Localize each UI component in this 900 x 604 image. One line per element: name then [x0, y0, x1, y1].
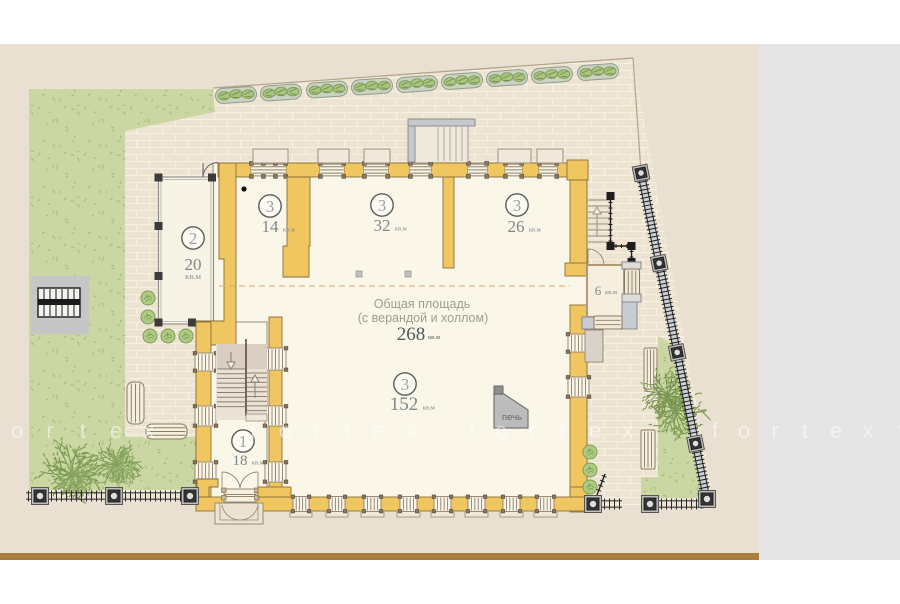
svg-text:3: 3	[378, 196, 387, 215]
svg-text:20: 20	[185, 255, 202, 274]
svg-text:14: 14	[262, 217, 280, 236]
svg-text:кв.м: кв.м	[423, 405, 435, 412]
svg-text:Общая площадь: Общая площадь	[374, 297, 471, 311]
svg-text:6: 6	[595, 283, 602, 298]
svg-text:2: 2	[189, 229, 198, 248]
svg-text:32: 32	[374, 216, 391, 235]
svg-text:x: x	[623, 418, 634, 443]
svg-text:f: f	[250, 418, 257, 443]
svg-text:r: r	[46, 418, 53, 443]
svg-text:кв.м: кв.м	[395, 226, 407, 233]
svg-text:e: e	[830, 418, 842, 443]
svg-text:КВ.М: КВ.М	[185, 274, 201, 281]
svg-text:r: r	[312, 418, 319, 443]
svg-text:1: 1	[239, 432, 248, 451]
svg-text:o: o	[738, 418, 750, 443]
svg-text:t: t	[802, 418, 808, 443]
svg-text:18: 18	[233, 453, 248, 469]
svg-text:t: t	[559, 418, 565, 443]
svg-text:e: e	[589, 418, 601, 443]
svg-text:(с верандой и холлом): (с верандой и холлом)	[358, 311, 489, 325]
svg-text:3: 3	[266, 197, 275, 216]
svg-text:268: 268	[397, 324, 426, 345]
svg-text:кв.м: кв.м	[605, 289, 617, 296]
svg-text:r: r	[528, 418, 535, 443]
svg-text:3: 3	[513, 196, 522, 215]
svg-text:3: 3	[401, 375, 410, 394]
svg-text:o: o	[279, 418, 291, 443]
svg-text:e: e	[372, 418, 384, 443]
svg-text:кв.м: кв.м	[428, 334, 440, 341]
svg-text:x: x	[863, 418, 874, 443]
svg-text:t: t	[344, 418, 350, 443]
svg-text:26: 26	[508, 217, 525, 236]
svg-text:кв.м: кв.м	[529, 227, 541, 234]
svg-text:x: x	[144, 418, 155, 443]
svg-text:o: o	[11, 418, 23, 443]
svg-text:x: x	[406, 418, 417, 443]
svg-text:r: r	[771, 418, 778, 443]
svg-text:t: t	[80, 418, 86, 443]
svg-text:o: o	[495, 418, 507, 443]
svg-text:f: f	[712, 418, 719, 443]
svg-text:кв.м: кв.м	[283, 227, 295, 234]
svg-text:кв.м: кв.м	[252, 460, 264, 467]
svg-text:152: 152	[390, 394, 419, 415]
svg-text:f: f	[469, 418, 476, 443]
svg-text:e: e	[110, 418, 122, 443]
